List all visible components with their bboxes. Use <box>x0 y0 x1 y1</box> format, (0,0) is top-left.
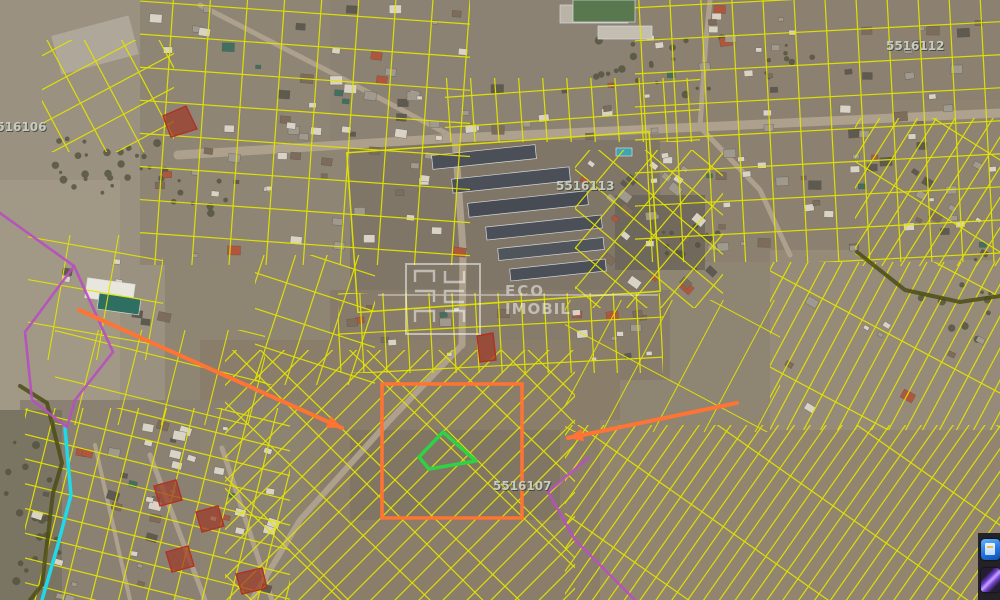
watermark-text-line1: ECO <box>505 282 545 300</box>
taskbar-corner <box>978 533 1000 600</box>
parcel-label: 5516113 <box>556 179 614 193</box>
blue-app-icon[interactable] <box>981 539 1000 560</box>
map-view[interactable]: ECOIMOBIL5516106551610655161135516113551… <box>0 0 1000 600</box>
parcel-label: 5516107 <box>493 479 551 493</box>
purple-app-icon[interactable] <box>981 568 1000 592</box>
parcel-label: 5516112 <box>886 39 944 53</box>
red-parcel <box>477 333 496 362</box>
watermark-text-line2: IMOBIL <box>505 300 571 318</box>
parcel-label: 5516106 <box>0 120 46 134</box>
map-canvas[interactable]: ECOIMOBIL5516106551610655161135516113551… <box>0 0 1000 600</box>
